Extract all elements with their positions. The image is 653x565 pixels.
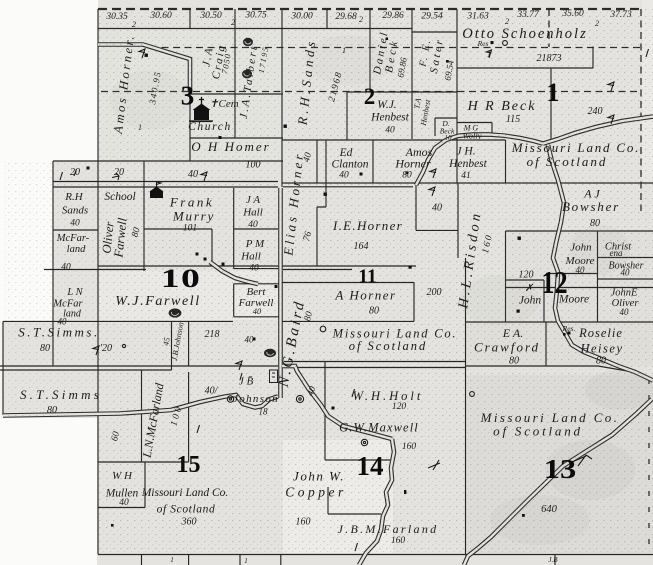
svg-text:40/: 40/: [205, 386, 219, 397]
svg-text:McFar-: McFar-: [56, 233, 90, 244]
svg-text:11: 11: [358, 267, 376, 288]
svg-text:Horner: Horner: [394, 157, 431, 171]
svg-text:R.H: R.H: [64, 191, 83, 203]
svg-text:J.B.M.Farland: J.B.M.Farland: [338, 522, 439, 536]
svg-text:40: 40: [245, 335, 255, 345]
svg-text:80: 80: [402, 171, 412, 181]
svg-text:Hall: Hall: [240, 251, 261, 263]
svg-text:40: 40: [253, 306, 262, 316]
svg-text:80: 80: [40, 343, 50, 354]
svg-text:29.54: 29.54: [421, 12, 443, 22]
svg-text:101: 101: [183, 224, 197, 234]
svg-text:10: 10: [445, 134, 453, 142]
svg-text:160: 160: [391, 536, 406, 546]
svg-text:✗: ✗: [525, 283, 534, 294]
svg-text:14: 14: [357, 451, 384, 481]
svg-text:1: 1: [138, 123, 142, 132]
svg-text:40: 40: [432, 203, 442, 214]
svg-text:35.60: 35.60: [561, 9, 584, 19]
svg-text:80: 80: [509, 356, 519, 367]
svg-text:Wolly: Wolly: [462, 131, 481, 141]
svg-text:2: 2: [595, 19, 599, 28]
svg-text:Res: Res: [477, 39, 489, 48]
svg-text:80: 80: [596, 356, 606, 367]
svg-text:40: 40: [119, 498, 129, 508]
svg-text:160: 160: [402, 442, 417, 452]
svg-text:33.77: 33.77: [516, 10, 540, 20]
svg-text:of Scotland: of Scotland: [493, 424, 583, 439]
svg-text:29.68: 29.68: [335, 12, 357, 22]
svg-text:Church: Church: [188, 121, 232, 133]
svg-text:115: 115: [506, 114, 520, 125]
svg-text:A Horner: A Horner: [334, 288, 396, 303]
svg-text:20: 20: [70, 167, 80, 178]
svg-text:3: 3: [181, 81, 195, 111]
svg-text:40: 40: [621, 268, 631, 278]
svg-text:Murry: Murry: [172, 209, 215, 224]
svg-text:J H.: J H.: [456, 146, 475, 158]
svg-text:Res.: Res.: [562, 324, 576, 333]
svg-text:31.63: 31.63: [466, 12, 489, 22]
svg-text:40: 40: [248, 220, 258, 230]
svg-text:640: 640: [541, 504, 558, 515]
svg-text:Ed: Ed: [339, 147, 353, 159]
svg-text:1: 1: [342, 46, 346, 55]
svg-text:30.75: 30.75: [244, 11, 267, 21]
svg-text:Hall: Hall: [242, 207, 263, 219]
svg-text:O H Homer: O H Homer: [191, 139, 270, 154]
svg-text:40: 40: [385, 126, 395, 136]
svg-text:45: 45: [161, 337, 171, 346]
svg-text:Missouri Land Co.: Missouri Land Co.: [511, 140, 640, 155]
svg-text:40: 40: [61, 263, 71, 273]
svg-text:I.E.Horner: I.E.Horner: [332, 218, 403, 233]
svg-text:240: 240: [588, 106, 603, 117]
svg-text:120: 120: [392, 402, 407, 412]
svg-text:40: 40: [70, 219, 80, 229]
svg-text:Heisey: Heisey: [579, 342, 623, 356]
svg-text:1: 1: [170, 556, 174, 564]
svg-text:Henbest: Henbest: [370, 112, 409, 124]
svg-text:Crawford: Crawford: [474, 340, 540, 355]
svg-text:of Scotland: of Scotland: [157, 504, 216, 516]
svg-text:10: 10: [161, 265, 202, 294]
svg-text:20: 20: [114, 167, 124, 178]
svg-text:W.H.Holt: W.H.Holt: [353, 389, 424, 403]
svg-text:40: 40: [339, 171, 349, 181]
svg-text:360: 360: [181, 517, 197, 528]
svg-text:100: 100: [246, 160, 261, 171]
svg-text:200: 200: [427, 287, 442, 298]
svg-text:2: 2: [359, 15, 363, 24]
svg-text:John: John: [570, 242, 592, 254]
svg-text:120: 120: [519, 270, 534, 281]
svg-text:S.T.Simms.: S.T.Simms.: [18, 325, 99, 340]
svg-text:80: 80: [369, 306, 379, 317]
svg-text:18: 18: [259, 407, 269, 417]
svg-text:JohnE: JohnE: [611, 288, 638, 299]
svg-text:Roselie: Roselie: [578, 326, 623, 340]
svg-text:S.T.Simms: S.T.Simms: [20, 387, 102, 402]
svg-text:41: 41: [461, 171, 471, 181]
svg-text:Copper: Copper: [285, 485, 347, 500]
svg-text:1: 1: [547, 78, 560, 107]
svg-text:Missouri Land Co.: Missouri Land Co.: [141, 487, 229, 499]
svg-text:40: 40: [576, 265, 586, 275]
svg-text:J B̄: J B̄: [239, 376, 254, 388]
svg-text:Frank: Frank: [169, 195, 214, 210]
svg-text:40: 40: [620, 307, 630, 317]
svg-text:E A.: E A.: [502, 326, 523, 340]
svg-text:John: John: [519, 295, 542, 307]
svg-text:✝Cem: ✝Cem: [209, 98, 238, 110]
svg-text:15: 15: [177, 452, 201, 478]
svg-text:W H: W H: [112, 470, 133, 482]
svg-text:30.60: 30.60: [149, 11, 172, 21]
svg-text:of Scotland: of Scotland: [527, 154, 608, 169]
svg-text:Johnson: Johnson: [233, 393, 279, 405]
svg-text:160: 160: [296, 517, 311, 528]
svg-text:80: 80: [590, 218, 600, 229]
svg-text:H R Beck: H R Beck: [467, 99, 537, 114]
svg-text:John W.: John W.: [293, 469, 345, 484]
svg-text:Henbest: Henbest: [448, 158, 487, 170]
svg-text:1: 1: [487, 50, 491, 59]
svg-text:P M: P M: [245, 238, 265, 250]
svg-text:G.W.Maxwell: G.W.Maxwell: [339, 421, 419, 435]
svg-text:40: 40: [188, 169, 198, 180]
svg-text:Sands: Sands: [62, 205, 88, 217]
svg-text:30.50: 30.50: [199, 11, 222, 21]
svg-text:W.J.Farwell: W.J.Farwell: [115, 294, 201, 309]
svg-text:J A: J A: [246, 194, 260, 206]
svg-text:J.B: J.B: [548, 556, 558, 564]
svg-text:2: 2: [231, 18, 235, 27]
svg-text:29.86: 29.86: [382, 11, 404, 21]
svg-text:218: 218: [205, 329, 220, 340]
svg-text:'20: '20: [100, 343, 112, 354]
svg-text:Clanton: Clanton: [331, 159, 368, 171]
svg-text:37.73: 37.73: [609, 10, 632, 20]
svg-text:40: 40: [249, 264, 259, 274]
svg-text:2: 2: [132, 20, 136, 29]
svg-text:land: land: [67, 244, 86, 255]
svg-text:L N: L N: [66, 287, 83, 298]
svg-text:2: 2: [505, 17, 509, 26]
svg-text:21873: 21873: [537, 53, 562, 64]
svg-text:80: 80: [47, 405, 57, 416]
svg-text:13: 13: [544, 454, 576, 484]
svg-text:30.00: 30.00: [290, 12, 313, 22]
svg-text:164: 164: [354, 241, 369, 252]
svg-text:Bowsher: Bowsher: [562, 199, 620, 214]
svg-text:ena: ena: [610, 248, 623, 258]
svg-text:of Scotland: of Scotland: [349, 339, 428, 353]
svg-text:12: 12: [541, 266, 567, 301]
svg-text:W.J.: W.J.: [377, 99, 396, 111]
svg-text:2: 2: [364, 84, 376, 109]
svg-text:30.35: 30.35: [105, 12, 128, 22]
svg-text:School: School: [104, 191, 135, 203]
svg-text:1: 1: [244, 557, 248, 565]
